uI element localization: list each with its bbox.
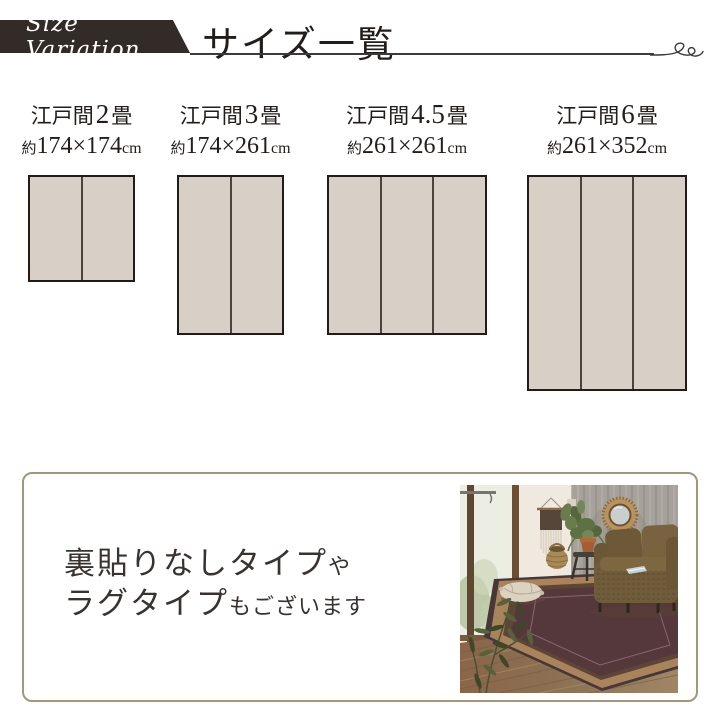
size-dimensions-label: 約261×352cm bbox=[547, 131, 667, 162]
size-card: 江戸間3畳 約174×261cm bbox=[177, 98, 284, 335]
page-title: サイズ一覧 bbox=[202, 14, 396, 68]
curtain-rod bbox=[460, 491, 496, 494]
note-line1-small: や bbox=[328, 554, 351, 579]
ribbon-label: Size Variation bbox=[0, 11, 190, 63]
note-line-2: ラグタイプもございます bbox=[64, 584, 367, 624]
tatami-mat-diagram bbox=[327, 175, 487, 335]
size-name-label: 江戸間4.5畳 bbox=[346, 98, 468, 131]
size-dimensions-label: 約174×174cm bbox=[21, 131, 141, 162]
dimension-unit: cm bbox=[648, 140, 668, 157]
tatami-count: 3 bbox=[243, 99, 261, 129]
size-name-label: 江戸間2畳 bbox=[31, 98, 133, 131]
size-card: 江戸間4.5畳 約261×261cm bbox=[327, 98, 487, 335]
dimension-unit: cm bbox=[271, 140, 291, 157]
size-name-label: 江戸間6畳 bbox=[556, 98, 658, 131]
note-line1-main: 裏貼りなしタイプ bbox=[64, 546, 328, 581]
note-line2-main: ラグタイプ bbox=[64, 586, 229, 621]
approx-prefix: 約 bbox=[170, 141, 185, 157]
size-variation-ribbon: Size Variation bbox=[0, 20, 190, 53]
window-post bbox=[467, 485, 474, 643]
tatami-mat-diagram bbox=[177, 175, 284, 335]
mat-panel bbox=[179, 177, 232, 333]
mat-panel bbox=[232, 177, 283, 333]
dimensions-value: 174×261 bbox=[185, 133, 271, 159]
mat-panel bbox=[329, 177, 382, 333]
dimensions-value: 261×352 bbox=[562, 133, 648, 159]
mat-panel bbox=[382, 177, 435, 333]
tatami-mat-diagram bbox=[527, 175, 687, 391]
dimension-unit: cm bbox=[122, 140, 142, 157]
tatami-mat-diagram bbox=[28, 175, 135, 282]
tatami-unit: 畳 bbox=[447, 104, 468, 128]
note-text: 裏貼りなしタイプや ラグタイプもございます bbox=[64, 544, 367, 624]
size-dimensions-label: 約261×261cm bbox=[347, 131, 467, 162]
mat-panel bbox=[634, 177, 685, 389]
mat-panel bbox=[582, 177, 635, 389]
mat-panel bbox=[529, 177, 582, 389]
tatami-unit: 畳 bbox=[637, 104, 658, 128]
mat-panel bbox=[30, 177, 83, 280]
tatami-count: 4.5 bbox=[409, 99, 447, 129]
tatami-count: 2 bbox=[94, 99, 112, 129]
size-name-prefix: 江戸間 bbox=[180, 104, 243, 128]
size-name-label: 江戸間3畳 bbox=[180, 98, 282, 131]
size-name-prefix: 江戸間 bbox=[31, 104, 94, 128]
mat-panel bbox=[434, 177, 485, 333]
size-name-prefix: 江戸間 bbox=[556, 104, 619, 128]
approx-prefix: 約 bbox=[347, 141, 362, 157]
approx-prefix: 約 bbox=[547, 141, 562, 157]
approx-prefix: 約 bbox=[21, 141, 36, 157]
header-divider-line bbox=[190, 53, 654, 55]
round-mirror bbox=[603, 498, 637, 532]
tatami-unit: 畳 bbox=[111, 104, 132, 128]
flourish-swirl-icon bbox=[650, 40, 704, 68]
tatami-unit: 畳 bbox=[260, 104, 281, 128]
room-photo bbox=[460, 485, 678, 693]
dimensions-value: 174×174 bbox=[36, 133, 122, 159]
size-variation-page: Size Variation サイズ一覧 江戸間2畳 約174×174cm 江戸… bbox=[0, 0, 720, 720]
dimension-unit: cm bbox=[448, 140, 468, 157]
dimensions-value: 261×261 bbox=[362, 133, 448, 159]
size-dimensions-label: 約174×261cm bbox=[170, 131, 290, 162]
size-name-prefix: 江戸間 bbox=[346, 104, 409, 128]
size-card: 江戸間6畳 約261×352cm bbox=[527, 98, 687, 391]
note-line-1: 裏貼りなしタイプや bbox=[64, 544, 367, 584]
tatami-count: 6 bbox=[619, 99, 637, 129]
mat-panel bbox=[83, 177, 134, 280]
note-line2-small: もございます bbox=[229, 594, 367, 619]
size-card: 江戸間2畳 約174×174cm bbox=[28, 98, 135, 282]
